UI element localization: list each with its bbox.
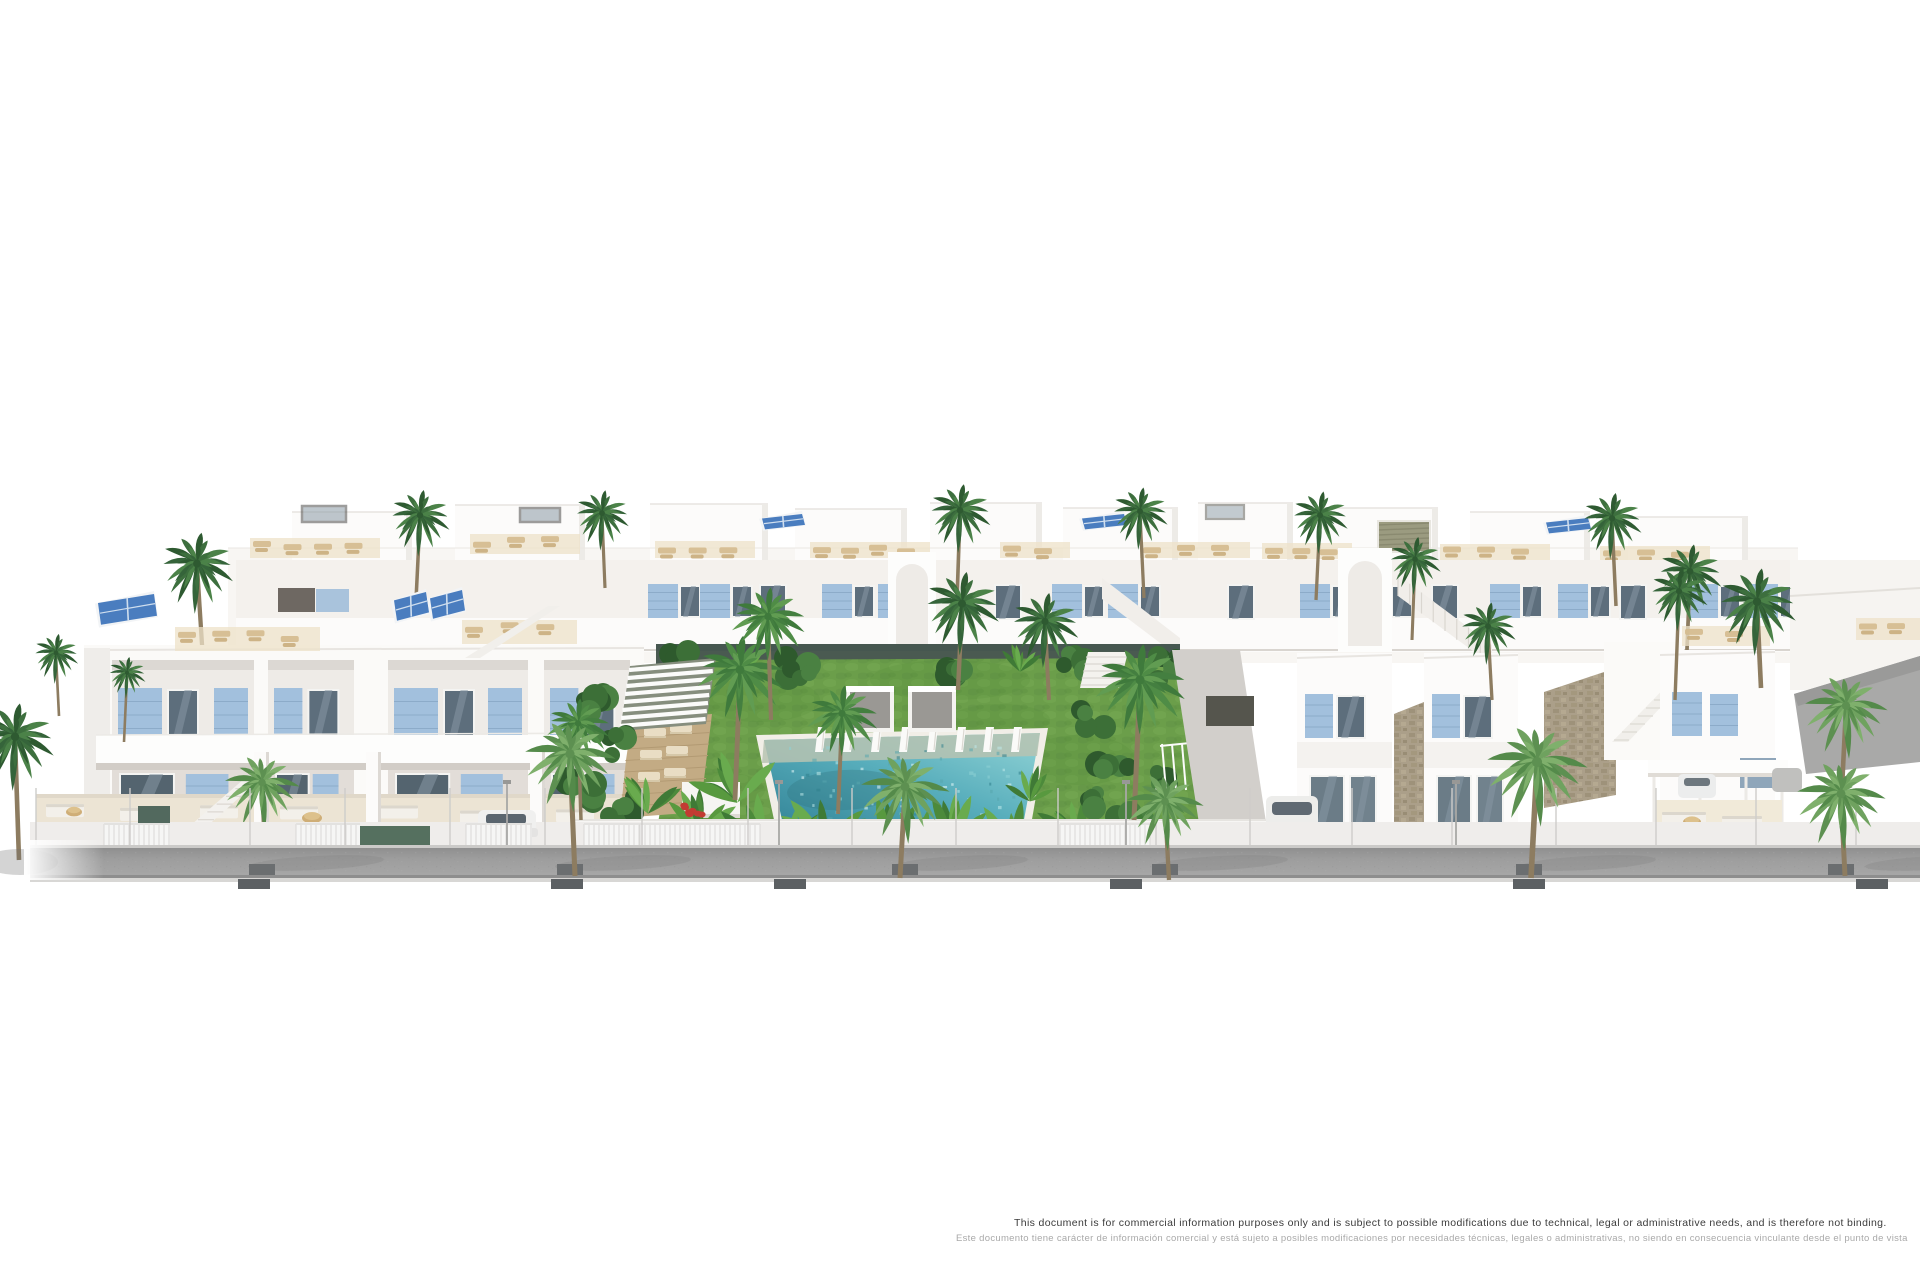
svg-text:This document is for commercia: This document is for commercial informat… — [1014, 1217, 1887, 1229]
svg-text:Este documento tiene carácter: Este documento tiene carácter de informa… — [956, 1233, 1908, 1244]
